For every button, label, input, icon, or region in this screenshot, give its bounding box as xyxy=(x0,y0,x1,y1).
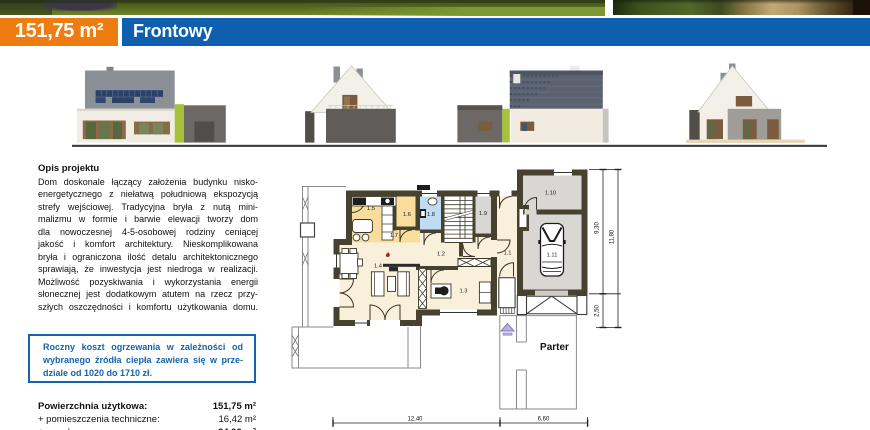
svg-text:1.3: 1.3 xyxy=(459,289,467,295)
svg-text:6,60: 6,60 xyxy=(538,417,550,423)
svg-text:1.9: 1.9 xyxy=(479,211,487,217)
svg-text:Parter: Parter xyxy=(540,342,569,353)
svg-text:1.11: 1.11 xyxy=(547,253,558,259)
svg-text:1.4: 1.4 xyxy=(374,264,383,270)
svg-text:1.10: 1.10 xyxy=(545,191,556,197)
svg-text:1.1: 1.1 xyxy=(503,251,511,257)
svg-text:9,30: 9,30 xyxy=(595,222,601,234)
svg-text:1.5: 1.5 xyxy=(367,206,375,212)
svg-text:1.2: 1.2 xyxy=(437,252,445,258)
svg-text:11,80: 11,80 xyxy=(610,229,616,244)
svg-text:1.6: 1.6 xyxy=(403,212,411,218)
svg-text:1.7: 1.7 xyxy=(390,233,398,239)
svg-text:1.8: 1.8 xyxy=(427,212,435,218)
svg-text:12,40: 12,40 xyxy=(407,417,423,423)
svg-text:2,50: 2,50 xyxy=(595,305,601,317)
